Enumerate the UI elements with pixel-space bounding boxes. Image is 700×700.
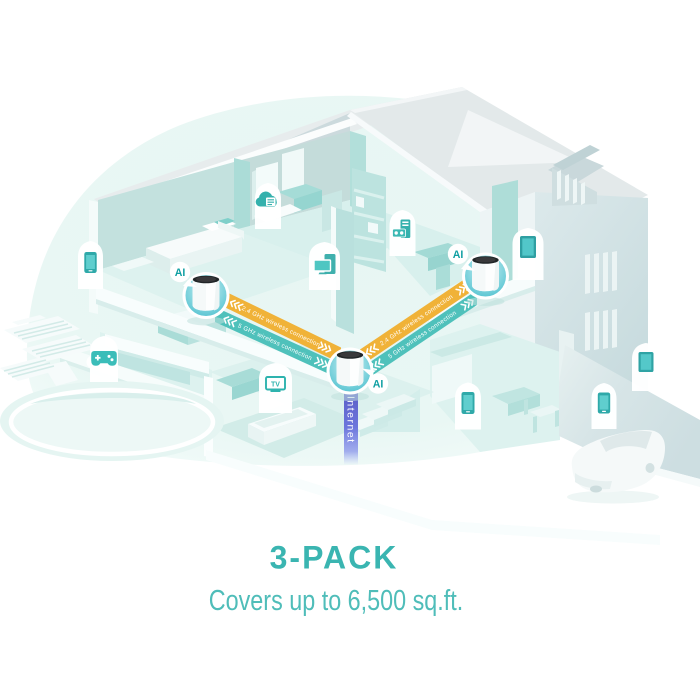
svg-text:AI: AI <box>175 267 186 279</box>
svg-text:TV: TV <box>271 381 280 388</box>
svg-text:Internet: Internet <box>345 396 357 444</box>
svg-text:Covers up to 6,500 sq.ft.: Covers up to 6,500 sq.ft. <box>209 584 463 617</box>
svg-text:AI: AI <box>373 378 384 390</box>
svg-text:AI: AI <box>453 249 464 261</box>
svg-text:3-PACK: 3-PACK <box>270 540 399 576</box>
